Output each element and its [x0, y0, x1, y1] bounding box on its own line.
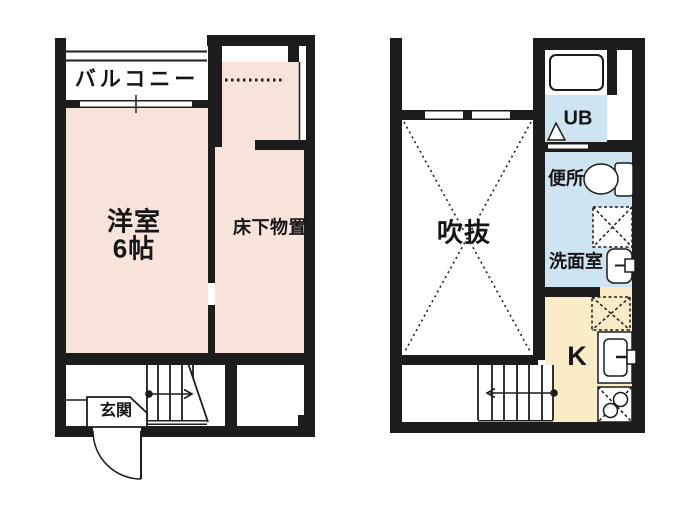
stair-start-dot [145, 390, 153, 398]
underfloor-storage-label: 床下物置 [233, 219, 307, 238]
room-size: 6帖 [107, 236, 161, 263]
storage-top-recess [222, 46, 288, 62]
balcony-railing [66, 52, 207, 61]
entrance-label: 玄関 [100, 404, 132, 421]
western-room-label: 洋室 6帖 [107, 209, 161, 264]
washroom-label: 洗面室 [549, 253, 603, 272]
toilet-label: 便所 [548, 170, 584, 189]
void-label: 吹抜 [437, 219, 491, 246]
unit-bath-label: UB [564, 109, 593, 130]
room-name: 洋室 [107, 209, 161, 236]
bathtub-icon [550, 55, 603, 90]
entrance-door [93, 431, 141, 479]
kitchen-sink-icon [598, 332, 636, 383]
washing-machine-icon [593, 207, 632, 247]
stairs-first-floor [145, 363, 208, 424]
floorplan-image: バルコニー 洋室 6帖 床下物置 玄関 吹抜 UB 便所 洗面室 K [0, 0, 700, 513]
stair-start-dot [550, 389, 558, 397]
first-floor-plan [55, 35, 315, 479]
pipe-space-2f [617, 50, 632, 140]
underfloor-storage-area [215, 62, 304, 353]
entrance-door-arc [93, 431, 141, 479]
kitchen-label: K [567, 342, 587, 370]
second-floor-plan [390, 38, 645, 433]
washbasin-icon [607, 249, 635, 283]
unit-bath-door-sill [548, 143, 588, 150]
toilet-icon [584, 163, 633, 196]
stove-icon [598, 387, 632, 422]
balcony-label: バルコニー [75, 69, 200, 91]
